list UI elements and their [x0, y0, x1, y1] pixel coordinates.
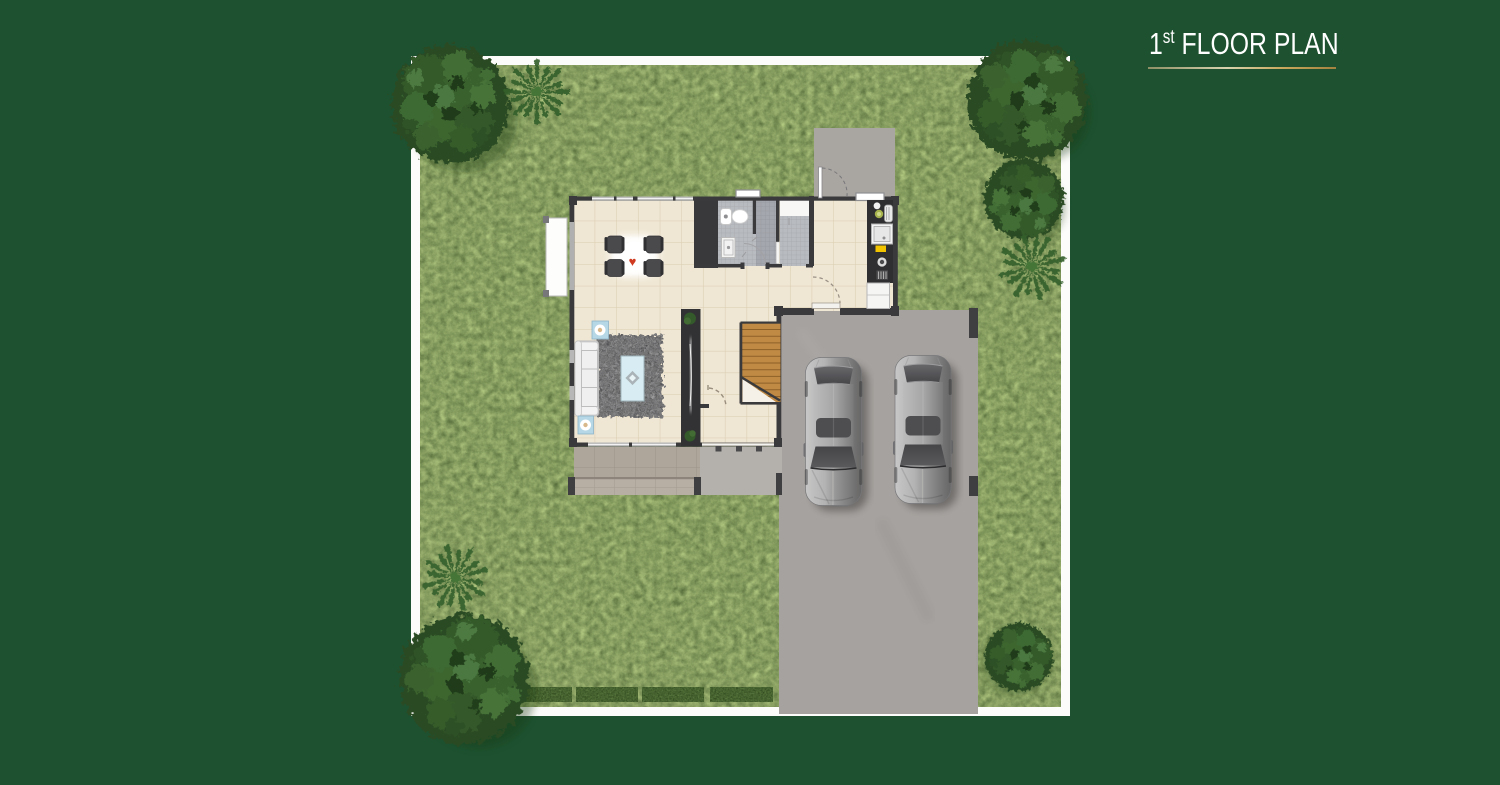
- svg-text:♥: ♥: [629, 254, 637, 269]
